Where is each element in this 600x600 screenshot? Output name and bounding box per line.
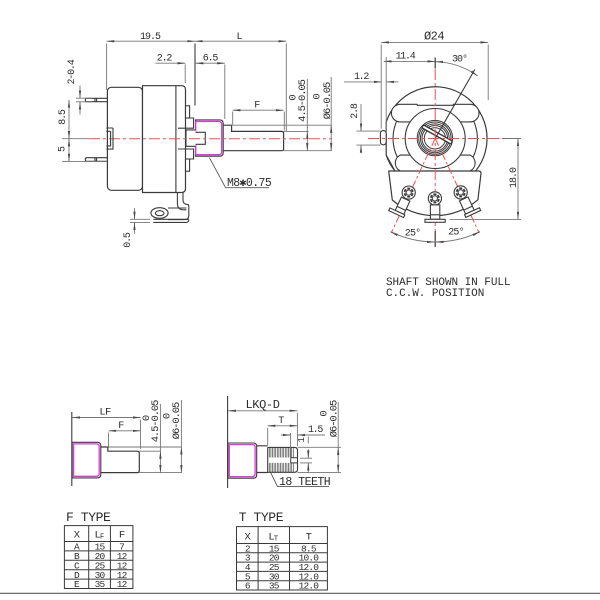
- svg-text:2.8: 2.8: [350, 103, 361, 119]
- svg-text:0: 0: [141, 415, 153, 421]
- svg-text:0: 0: [288, 95, 300, 101]
- svg-text:1.5: 1.5: [308, 425, 323, 436]
- svg-text:25°: 25°: [448, 227, 464, 239]
- svg-text:1: 1: [297, 438, 307, 443]
- svg-text:F TYPE: F TYPE: [66, 510, 111, 525]
- svg-text:C.C.W. POSITION: C.C.W. POSITION: [386, 288, 484, 300]
- svg-text:0.5: 0.5: [123, 232, 134, 248]
- svg-text:M8✱0.75: M8✱0.75: [227, 177, 272, 190]
- svg-text:Ø24: Ø24: [424, 30, 444, 44]
- svg-text:Ø6-0.05: Ø6-0.05: [322, 82, 334, 119]
- svg-text:0: 0: [319, 411, 331, 417]
- svg-text:6.5: 6.5: [203, 54, 219, 65]
- svg-text:35: 35: [95, 579, 106, 590]
- svg-text:2.2: 2.2: [157, 54, 173, 65]
- svg-text:2-0.4: 2-0.4: [67, 59, 78, 84]
- svg-text:T: T: [278, 416, 284, 427]
- svg-text:T TYPE: T TYPE: [239, 510, 284, 525]
- svg-text:35: 35: [269, 581, 280, 592]
- svg-text:12: 12: [117, 579, 128, 590]
- svg-text:18 TEETH: 18 TEETH: [279, 476, 330, 489]
- svg-text:LF: LF: [99, 407, 111, 419]
- svg-text:LT: LT: [268, 532, 278, 544]
- svg-text:LKQ-D: LKQ-D: [245, 398, 279, 412]
- svg-text:X: X: [245, 532, 252, 544]
- svg-text:F: F: [254, 101, 260, 112]
- svg-text:Ø6-0.05: Ø6-0.05: [171, 402, 183, 439]
- svg-text:T: T: [306, 532, 312, 544]
- svg-text:18.0: 18.0: [509, 167, 520, 188]
- svg-text:F: F: [119, 530, 125, 542]
- svg-text:F: F: [118, 421, 124, 432]
- svg-text:12.0: 12.0: [299, 581, 320, 592]
- svg-text:0: 0: [161, 413, 173, 419]
- svg-text:0: 0: [312, 94, 324, 100]
- svg-text:19.5: 19.5: [140, 32, 161, 43]
- svg-text:Ø6-0.05: Ø6-0.05: [328, 400, 340, 437]
- svg-text:8.5: 8.5: [58, 109, 69, 125]
- svg-text:X: X: [74, 530, 81, 542]
- svg-text:30°: 30°: [452, 54, 467, 66]
- svg-text:LF: LF: [95, 530, 105, 542]
- svg-text:25°: 25°: [405, 228, 421, 240]
- svg-text:1.2: 1.2: [354, 72, 369, 83]
- svg-text:5: 5: [58, 146, 69, 152]
- svg-text:11.4: 11.4: [396, 52, 416, 63]
